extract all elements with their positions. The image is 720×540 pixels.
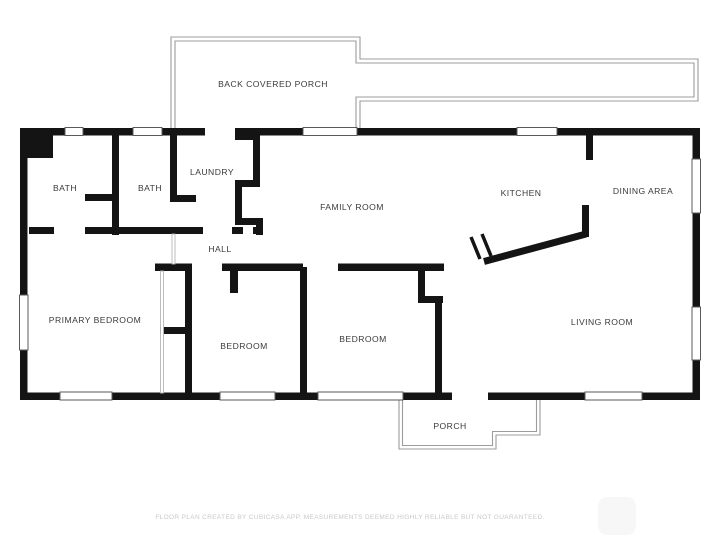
room-label-back-covered-porch: BACK COVERED PORCH [218,79,328,89]
room-label-primary-bedroom: PRIMARY BEDROOM [49,315,141,325]
wall-segment [693,128,701,159]
wall-segment [112,393,220,401]
window [220,392,275,400]
wall-segment [642,393,700,401]
wall-segment [253,135,260,187]
room-label-family-room: FAMILY ROOM [320,202,384,212]
room-label-porch: PORCH [433,421,466,431]
wall-segment [230,271,238,293]
wall-segment [488,393,585,401]
room-label-bedroom-middle: BEDROOM [220,341,268,351]
wall-segment [20,128,28,295]
window [60,392,112,400]
hall-opening-line [172,234,175,264]
wall-segment [300,267,307,393]
wall-segment [155,264,192,272]
window [20,295,29,350]
wall-segment [170,135,177,196]
window [692,159,701,213]
wall-segment [586,135,593,160]
window [692,307,701,360]
kitchen-peninsula-stub [482,234,491,256]
room-label-dining-area: DINING AREA [613,186,673,196]
wall-segment [85,194,112,201]
wall-segment [112,135,119,235]
wall-segment [160,327,187,334]
wall-segment [222,264,303,272]
wall-segment [235,180,260,187]
wall-segment [403,393,452,401]
wall-segment [357,128,517,136]
window [585,392,642,400]
wall-segment [275,393,318,401]
wall-segment [162,128,205,136]
window [517,128,557,136]
room-label-bedroom-right: BEDROOM [339,334,387,344]
wall-segment [170,195,196,202]
room-label-kitchen: KITCHEN [501,188,542,198]
floorplan-canvas: BACK COVERED PORCH BATH BATH LAUNDRY FAM… [0,0,720,540]
closet-slider-line [161,271,164,393]
window [303,128,357,136]
wall-segment [557,128,700,136]
kitchen-peninsula-stub [471,237,480,259]
front-porch-outline [399,400,540,449]
wall-segment [693,213,701,307]
window [318,392,403,400]
room-label-living-room: LIVING ROOM [571,317,633,327]
wall-segment [338,264,444,272]
interior-walls [29,128,593,393]
wall-segment [83,128,133,136]
room-label-hall: HALL [208,244,231,254]
room-label-bath-middle: BATH [138,183,162,193]
window [65,128,83,136]
wall-segment [232,227,243,234]
room-label-laundry: LAUNDRY [190,167,234,177]
floorplan-drawing: BACK COVERED PORCH BATH BATH LAUNDRY FAM… [0,0,720,540]
wall-segment [256,218,263,235]
window [133,128,162,136]
disclaimer-text: FLOOR PLAN CREATED BY CUBICASA APP. MEAS… [0,514,700,521]
kitchen-peninsula-wall [484,234,586,262]
room-label-bath-left: BATH [53,183,77,193]
wall-segment [29,227,54,234]
thin-partitions [161,234,176,393]
wall-segment [435,296,442,393]
wall-segment [85,227,203,234]
wall-segment [20,393,60,401]
